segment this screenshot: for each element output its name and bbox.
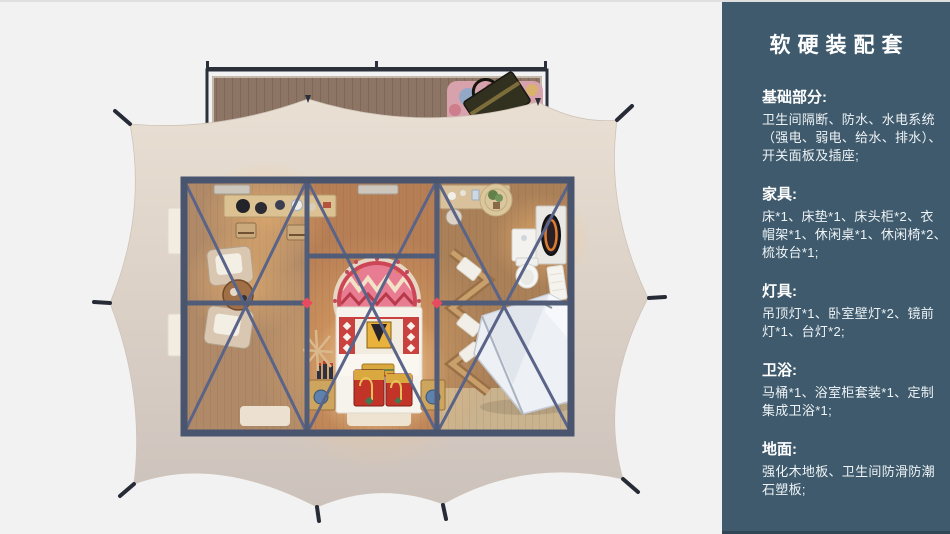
- plant-on-straw-rug: [480, 184, 512, 216]
- section-body: 强化木地板、卫生间防滑防潮 石塑板;: [762, 463, 930, 499]
- spec-sections: 基础部分:卫生间隔断、防水、水电系统 （强电、弱电、给水、排水）、 开关面板及插…: [722, 59, 950, 499]
- section-heading: 灯具:: [762, 284, 930, 300]
- floor-mat: [240, 406, 290, 426]
- section-body: 卫生间隔断、防水、水电系统 （强电、弱电、给水、排水）、 开关面板及插座;: [762, 111, 930, 165]
- spec-section: 地面:强化木地板、卫生间防滑防潮 石塑板;: [762, 442, 930, 499]
- section-body: 吊顶灯*1、卧室壁灯*2、镜前 灯*1、台灯*2;: [762, 305, 930, 341]
- slide: 软硬装配套 基础部分:卫生间隔断、防水、水电系统 （强电、弱电、给水、排水）、 …: [0, 0, 950, 534]
- section-body: 马桶*1、浴室柜套装*1、定制 集成卫浴*1;: [762, 384, 930, 420]
- spec-section: 家具:床*1、床垫*1、床头柜*2、衣 帽架*1、休闲桌*1、休闲椅*2、 梳妆…: [762, 187, 930, 262]
- section-heading: 卫浴:: [762, 363, 930, 379]
- section-heading: 基础部分:: [762, 90, 930, 106]
- spec-section: 基础部分:卫生间隔断、防水、水电系统 （强电、弱电、给水、排水）、 开关面板及插…: [762, 90, 930, 165]
- ceiling-vent: [358, 185, 398, 194]
- section-body: 床*1、床垫*1、床头柜*2、衣 帽架*1、休闲桌*1、休闲椅*2、 梳妆台*1…: [762, 208, 930, 262]
- section-heading: 家具:: [762, 187, 930, 203]
- floorplan-render: [0, 2, 723, 534]
- bottle-decor: [317, 361, 333, 379]
- panel-title: 软硬装配套: [722, 29, 950, 59]
- room-interior: [184, 162, 590, 472]
- ceiling-vent: [214, 185, 250, 194]
- red-trunk-chests: [354, 370, 412, 406]
- spec-section: 灯具:吊顶灯*1、卧室壁灯*2、镜前 灯*1、台灯*2;: [762, 284, 930, 341]
- spec-panel: 软硬装配套 基础部分:卫生间隔断、防水、水电系统 （强电、弱电、给水、排水）、 …: [722, 2, 950, 534]
- spec-section: 卫浴:马桶*1、浴室柜套装*1、定制 集成卫浴*1;: [762, 363, 930, 420]
- section-heading: 地面:: [762, 442, 930, 458]
